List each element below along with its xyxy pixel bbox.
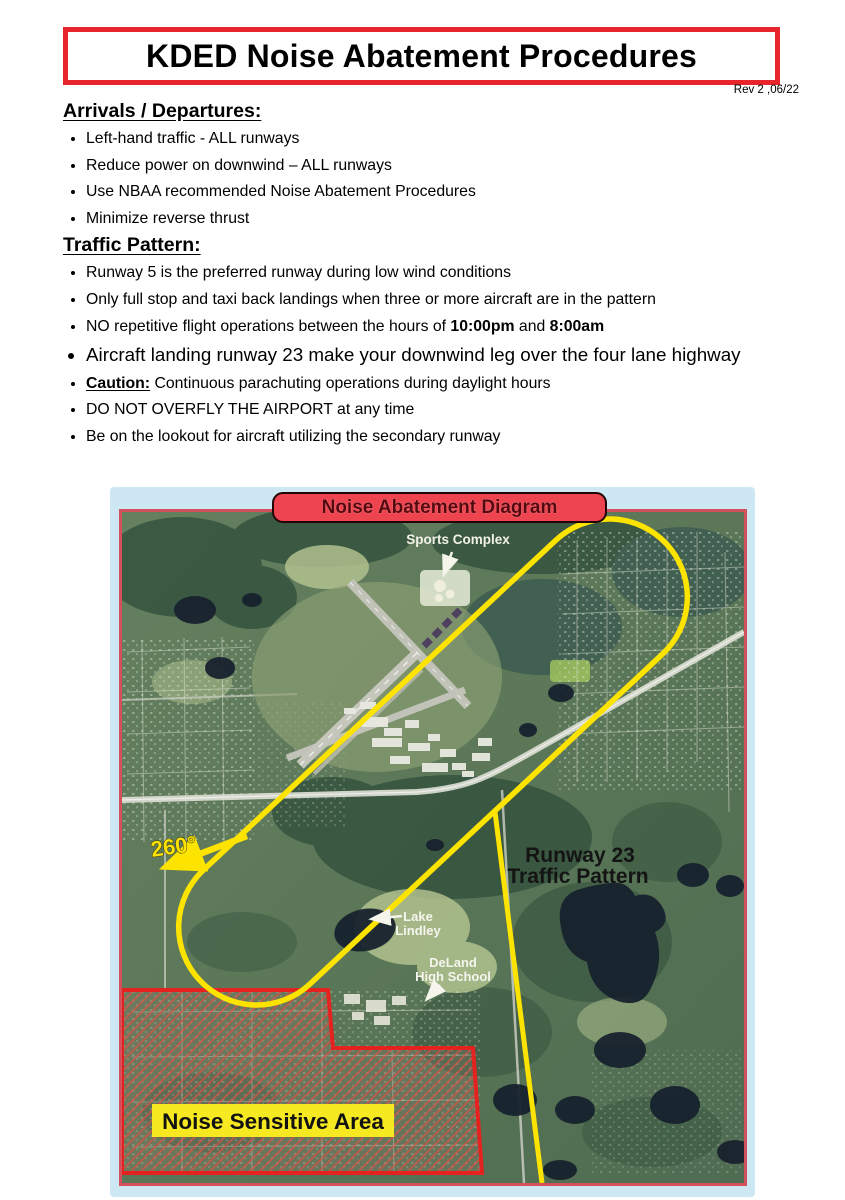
traffic-list: Runway 5 is the preferred runway during … xyxy=(63,260,785,450)
list-item: DO NOT OVERFLY THE AIRPORT at any time xyxy=(86,397,785,424)
page-title: KDED Noise Abatement Procedures xyxy=(146,38,697,75)
list-item: Use NBAA recommended Noise Abatement Pro… xyxy=(86,179,785,206)
pond xyxy=(548,684,574,702)
sports-complex-label: Sports Complex xyxy=(406,532,510,547)
list-item: Caution: Continuous parachuting operatio… xyxy=(86,371,785,398)
arrivals-list: Left-hand traffic - ALL runways Reduce p… xyxy=(63,126,785,232)
list-item: Minimize reverse thrust xyxy=(86,206,785,233)
lake xyxy=(174,596,216,624)
lake xyxy=(242,593,262,607)
procedures-content: Arrivals / Departures: Left-hand traffic… xyxy=(63,100,785,452)
diagram-banner: Noise Abatement Diagram xyxy=(272,492,607,523)
noise-abatement-diagram-panel: Noise Abatement Diagram xyxy=(110,487,755,1197)
lake xyxy=(677,863,709,887)
list-item: Aircraft landing runway 23 make your dow… xyxy=(86,341,756,370)
list-item: Only full stop and taxi back landings wh… xyxy=(86,287,785,314)
noise-area-label: Noise Sensitive Area xyxy=(162,1109,384,1134)
lake xyxy=(650,1086,700,1124)
runway23-pattern-label-line1: Runway 23 xyxy=(525,844,635,867)
pond xyxy=(519,723,537,737)
lake xyxy=(716,875,744,897)
high-school-label-line1: DeLand xyxy=(429,955,477,970)
aerial-photo: Noise Sensitive Area Sports Complex Runw… xyxy=(119,509,747,1186)
lake xyxy=(205,657,235,679)
list-item: Runway 5 is the preferred runway during … xyxy=(86,260,785,287)
aerial-map: Noise Sensitive Area Sports Complex Runw… xyxy=(122,512,744,1183)
list-item: Reduce power on downwind – ALL runways xyxy=(86,153,785,180)
high-school-label-line2: High School xyxy=(415,969,491,984)
list-item: Left-hand traffic - ALL runways xyxy=(86,126,785,153)
lake-lindley-label-line2: Lindley xyxy=(395,923,441,938)
arrivals-heading: Arrivals / Departures: xyxy=(63,100,785,123)
traffic-heading: Traffic Pattern: xyxy=(63,234,785,257)
lake xyxy=(594,1032,646,1068)
runway23-pattern-label-line2: Traffic Pattern xyxy=(507,865,648,888)
diagram-banner-label: Noise Abatement Diagram xyxy=(322,497,558,519)
list-item: NO repetitive flight operations between … xyxy=(86,314,785,341)
lake xyxy=(543,1160,577,1180)
lake-lindley-label-line1: Lake xyxy=(403,909,433,924)
revision-label: Rev 2 ,06/22 xyxy=(734,84,799,96)
list-item: Be on the lookout for aircraft utilizing… xyxy=(86,424,785,451)
lake xyxy=(555,1096,595,1124)
title-box: KDED Noise Abatement Procedures xyxy=(63,27,780,85)
pond xyxy=(426,839,444,851)
sports-complex-site xyxy=(420,570,470,606)
